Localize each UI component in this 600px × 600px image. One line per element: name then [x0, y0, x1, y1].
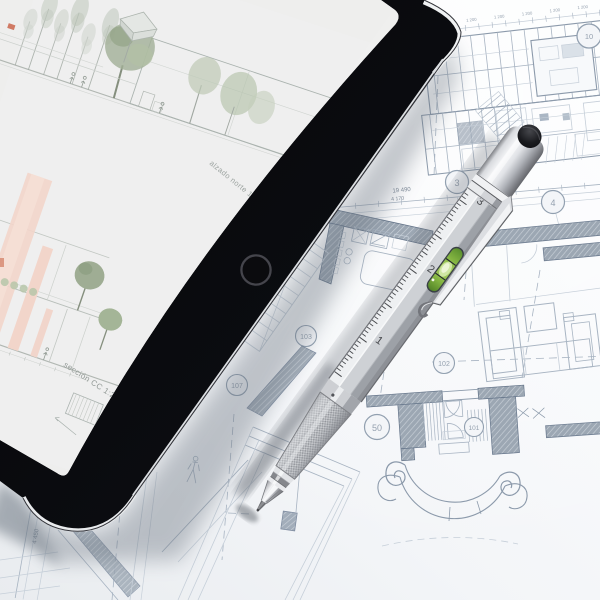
svg-text:101: 101: [469, 425, 480, 432]
svg-text:102: 102: [438, 361, 450, 368]
svg-text:4: 4: [550, 198, 555, 208]
svg-text:4 170: 4 170: [391, 196, 405, 203]
svg-text:50: 50: [372, 423, 382, 433]
svg-text:10: 10: [585, 32, 593, 41]
